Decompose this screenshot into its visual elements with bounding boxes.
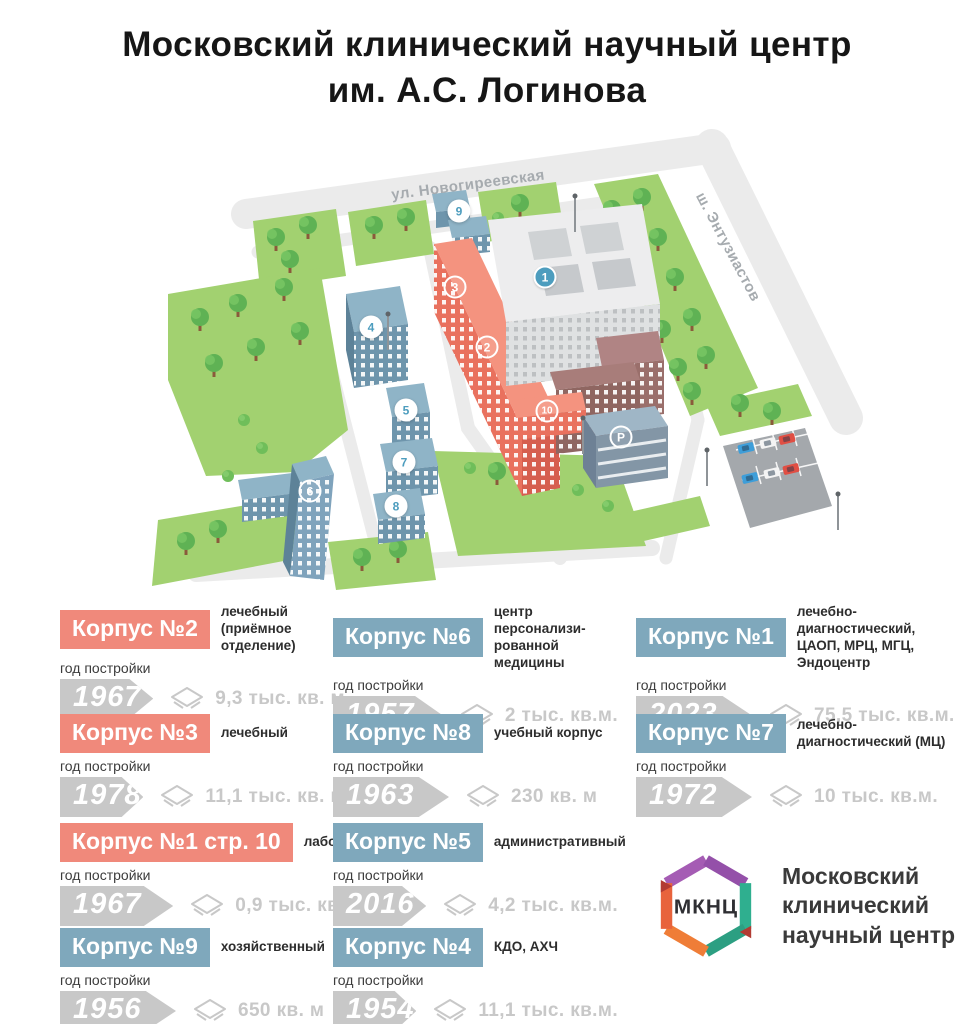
building-name-chip: Корпус №4 [333, 928, 483, 967]
area-info: 10 тыс. кв.м. [768, 783, 938, 811]
area-icon [192, 997, 228, 1024]
built-year-value: 2016 [333, 886, 426, 926]
mknc-hexagon-logo: МКНЦ [656, 852, 756, 960]
map-badge-10: 10 [536, 400, 559, 423]
map-badge-3: 3 [444, 276, 467, 299]
building-function: лечебный [221, 725, 288, 742]
area-value: 11,1 тыс. кв.м. [478, 1000, 618, 1022]
area-value: 9,3 тыс. кв. м [215, 688, 345, 710]
building-name-chip: Корпус №2 [60, 610, 210, 649]
map-badge-4: 4 [360, 316, 383, 339]
built-year-label: год постройки [60, 867, 365, 883]
building-card-korpus-9: Корпус №9 хозяйственный год постройки 19… [60, 928, 345, 1024]
campus-map-graphic [0, 128, 974, 598]
building-name-chip: Корпус №8 [333, 714, 483, 753]
map-badge-parking: P [610, 426, 633, 449]
area-icon [442, 892, 478, 920]
area-info: 230 кв. м [465, 783, 597, 811]
built-year-value: 1972 [636, 777, 752, 817]
campus-map: ул. Новогиреевская ш. Энтузиастов 1 2 3 … [0, 128, 974, 598]
built-year-label: год постройки [60, 660, 345, 676]
built-year-label: год постройки [333, 758, 618, 774]
building-card-korpus-2: Корпус №2 лечебный (приёмное отделение) … [60, 604, 345, 719]
area-info: 4,2 тыс. кв.м. [442, 892, 618, 920]
building-name-chip: Корпус №7 [636, 714, 786, 753]
building-name-chip: Корпус №1 стр. 10 [60, 823, 293, 862]
map-badge-7: 7 [393, 451, 416, 474]
building-card-korpus-3: Корпус №3 лечебный год постройки 1978 11… [60, 714, 345, 817]
building-function: лечебно- диагностический (МЦ) [797, 717, 946, 751]
map-badge-1: 1 [534, 266, 557, 289]
building-function: КДО, АХЧ [494, 939, 558, 956]
area-info: 650 кв. м [192, 997, 324, 1024]
area-value: 4,2 тыс. кв.м. [488, 895, 618, 917]
building-card-korpus-7: Корпус №7 лечебно- диагностический (МЦ) … [636, 714, 972, 817]
building-name-chip: Корпус №1 [636, 618, 786, 657]
building-card-korpus-5: Корпус №5 административный год постройки… [333, 823, 618, 926]
map-badge-2: 2 [476, 336, 499, 359]
title-line-1: Московский клинический научный центр [0, 22, 974, 68]
area-icon [432, 997, 468, 1024]
building-card-korpus-1-str-10: Корпус №1 стр. 10 лабораторный год постр… [60, 823, 365, 926]
building-card-korpus-8: Корпус №8 учебный корпус год постройки 1… [333, 714, 618, 817]
page-title: Московский клинический научный центр им.… [0, 22, 974, 114]
area-value: 11,1 тыс. кв. м [205, 786, 345, 808]
infographic-page: Московский клинический научный центр им.… [0, 0, 974, 1024]
logo-abbr-text: МКНЦ [674, 895, 738, 918]
building-name-chip: Корпус №6 [333, 618, 483, 657]
map-badge-5: 5 [395, 399, 418, 422]
title-line-2: им. А.С. Логинова [0, 68, 974, 114]
built-year-value: 1967 [60, 679, 153, 719]
built-year-label: год постройки [60, 758, 345, 774]
mknc-logo: МКНЦ Московский клинический научный цент… [656, 852, 955, 960]
built-year-label: год постройки [333, 867, 618, 883]
area-info: 9,3 тыс. кв. м [169, 685, 345, 713]
area-value: 230 кв. м [511, 786, 597, 808]
area-icon [189, 892, 225, 920]
area-icon [169, 685, 205, 713]
building-4 [346, 286, 408, 388]
area-icon [159, 783, 195, 811]
building-function: административный [494, 834, 626, 851]
area-icon [465, 783, 501, 811]
building-name-chip: Корпус №9 [60, 928, 210, 967]
area-info: 11,1 тыс. кв.м. [432, 997, 618, 1024]
map-badge-6: 6 [299, 480, 322, 503]
building-name-chip: Корпус №3 [60, 714, 210, 753]
building-card-korpus-4: Корпус №4 КДО, АХЧ год постройки 1954 11… [333, 928, 618, 1024]
building-function: хозяйственный [221, 939, 325, 956]
building-function: лечебный (приёмное отделение) [221, 604, 345, 655]
built-year-label: год постройки [636, 677, 972, 693]
built-year-value: 1956 [60, 991, 176, 1024]
area-icon [768, 783, 804, 811]
map-badge-8: 8 [385, 495, 408, 518]
built-year-label: год постройки [636, 758, 972, 774]
built-year-label: год постройки [333, 972, 618, 988]
built-year-value: 1963 [333, 777, 449, 817]
parking-lot [723, 428, 832, 528]
built-year-value: 1954 [333, 991, 416, 1024]
area-info: 11,1 тыс. кв. м [159, 783, 345, 811]
building-function: центр персонализи- рованной медицины [494, 604, 618, 672]
map-badge-9: 9 [448, 200, 471, 223]
building-function: учебный корпус [494, 725, 603, 742]
logo-name-text: Московский клинический научный центр [782, 862, 955, 950]
built-year-value: 1967 [60, 886, 173, 926]
building-function: лечебно-диагностический, ЦАОП, МРЦ, МГЦ,… [797, 604, 972, 672]
built-year-label: год постройки [60, 972, 345, 988]
area-value: 10 тыс. кв.м. [814, 786, 938, 808]
built-year-value: 1978 [60, 777, 143, 817]
area-value: 650 кв. м [238, 1000, 324, 1022]
built-year-label: год постройки [333, 677, 618, 693]
building-name-chip: Корпус №5 [333, 823, 483, 862]
